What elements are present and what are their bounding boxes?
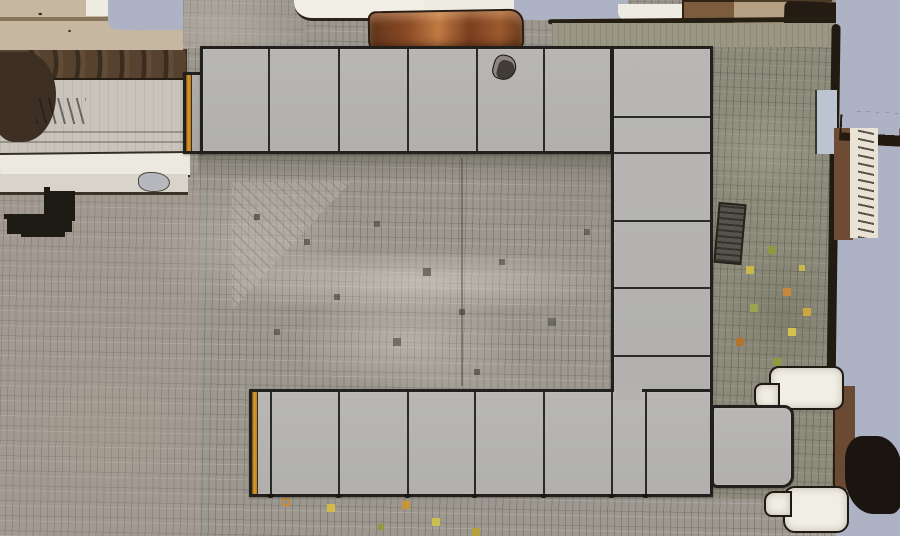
small-dark-object-on-stall bbox=[490, 52, 519, 82]
foreground-layer bbox=[0, 0, 900, 536]
plaza-orthophoto-scene bbox=[0, 0, 900, 536]
